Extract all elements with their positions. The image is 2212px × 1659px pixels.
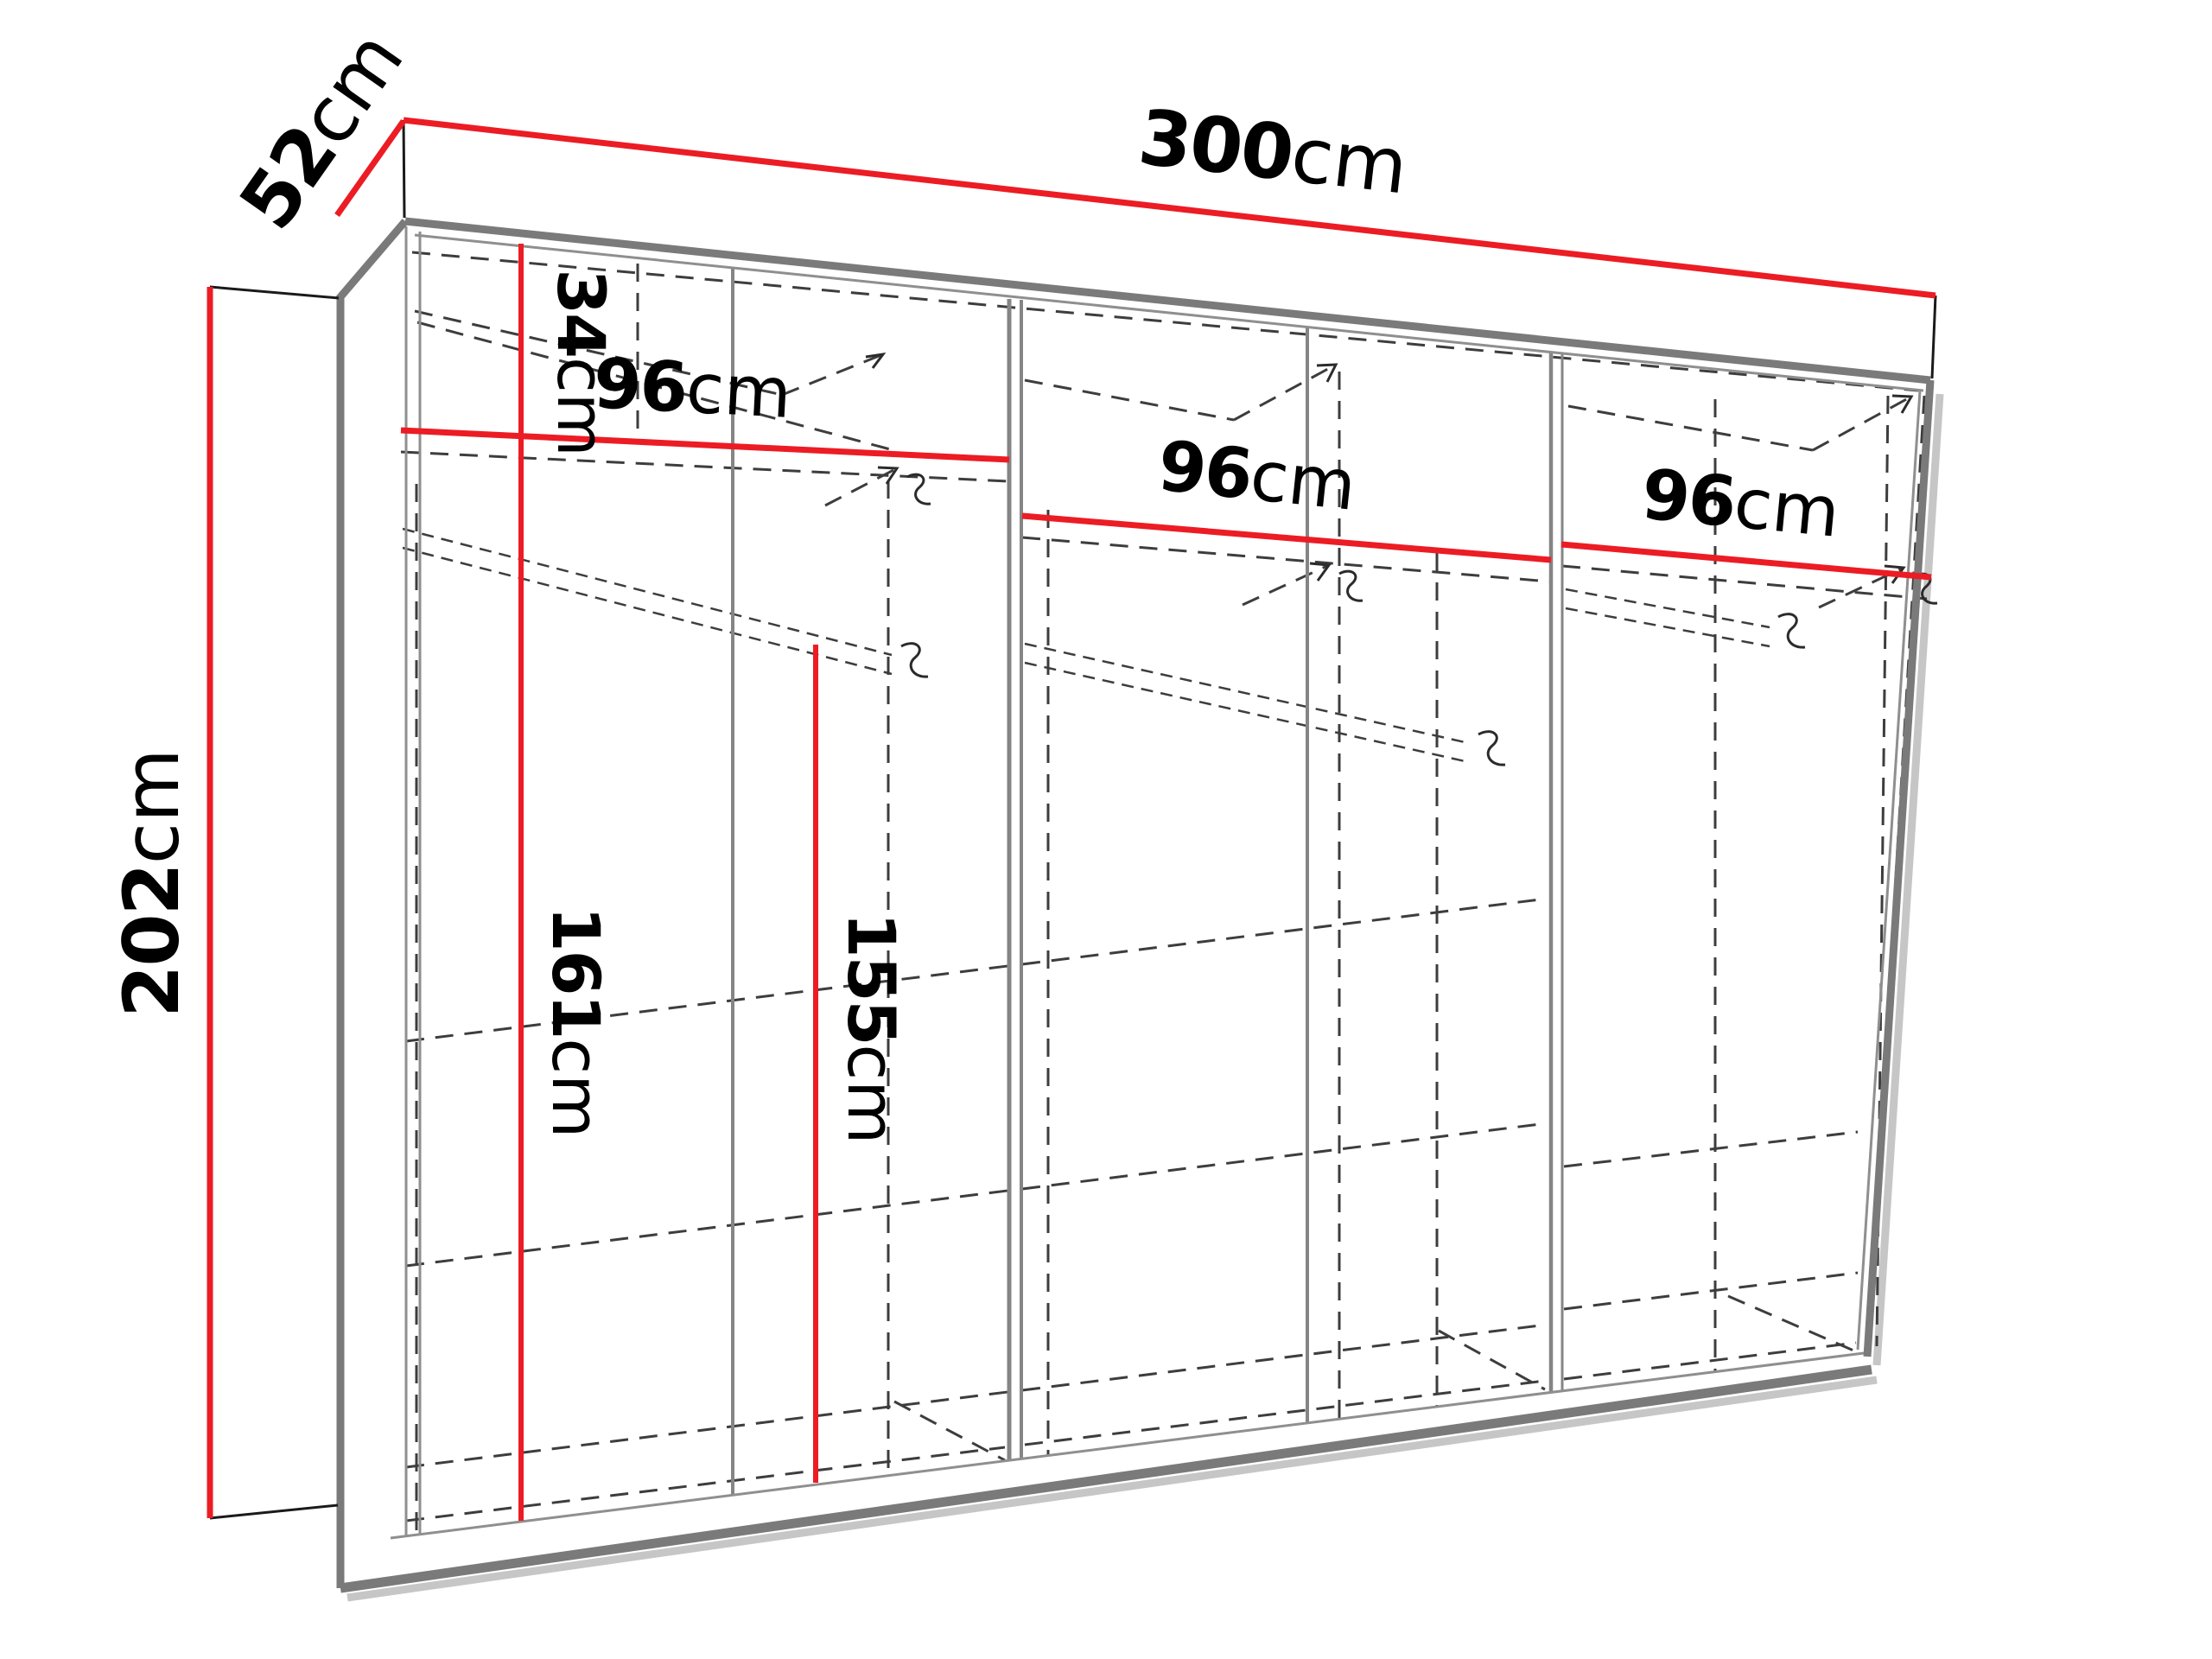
section1-width-label: 96cm	[592, 343, 794, 434]
section3-width-line	[1561, 544, 1931, 577]
rail-end-hook-icon	[901, 644, 928, 677]
section3-width-label: 96cm	[1638, 454, 1843, 553]
wardrobe-dimensions-diagram: 300cm 52cm 202cm 34cm 96cm 96cm 96cm 161…	[0, 0, 2212, 1659]
hanging-rails	[403, 529, 1770, 762]
section2-width-line	[1022, 516, 1551, 560]
wardrobe-diagram-canvas: 300cm 52cm 202cm 34cm 96cm 96cm 96cm 161…	[0, 0, 2212, 1659]
rail-end-hook-icon	[1478, 732, 1505, 765]
rail-height-label: 155cm	[833, 912, 910, 1144]
width-dimension-label: 300cm	[1135, 92, 1412, 212]
height-dimension-label: 202cm	[107, 748, 196, 1018]
extension-lines	[210, 120, 1935, 1518]
shelf-corner-hook-icon	[907, 474, 931, 504]
dimension-lines	[210, 120, 1935, 1521]
corner-arrow-icon	[1310, 563, 1329, 581]
section2-width-label: 96cm	[1154, 425, 1360, 525]
depth-dimension-label: 52cm	[222, 16, 420, 245]
shelf-corner-hook-icon	[1339, 571, 1363, 601]
rail-end-hook-icon	[1778, 614, 1805, 647]
left-compartment-height-label: 161cm	[537, 906, 614, 1138]
